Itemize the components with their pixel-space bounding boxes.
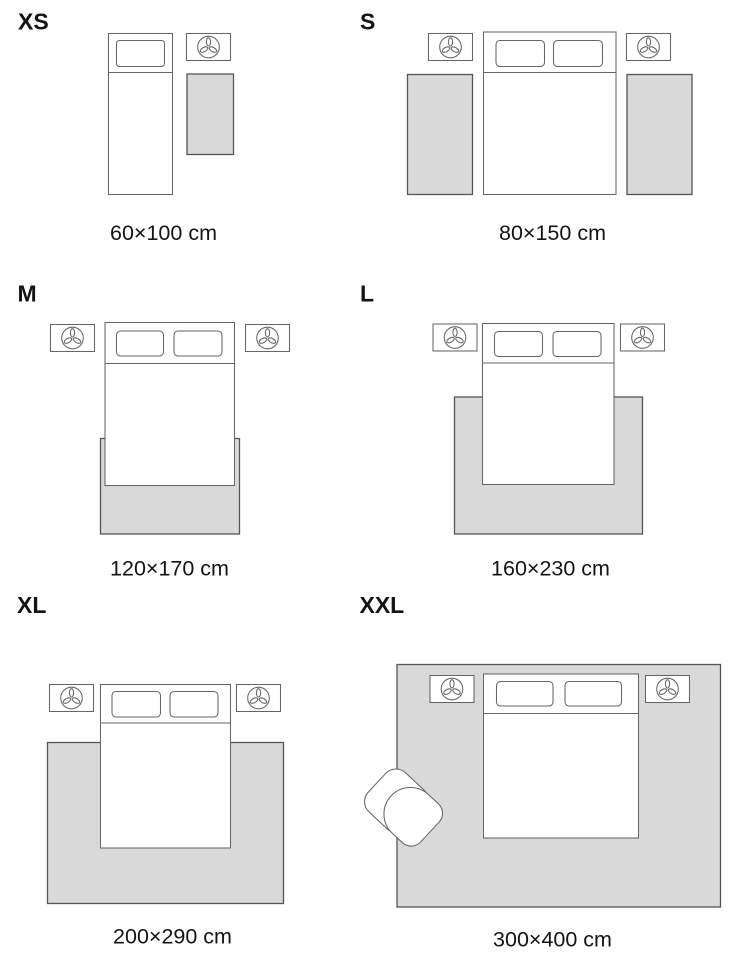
svg-text:M: M	[18, 281, 37, 307]
svg-text:160×230 cm: 160×230 cm	[491, 556, 610, 580]
svg-text:200×290 cm: 200×290 cm	[113, 925, 232, 949]
svg-text:300×400 cm: 300×400 cm	[493, 928, 612, 952]
svg-text:120×170 cm: 120×170 cm	[110, 556, 229, 580]
svg-text:60×100 cm: 60×100 cm	[110, 221, 217, 245]
svg-text:80×150 cm: 80×150 cm	[499, 221, 606, 245]
svg-text:XL: XL	[17, 592, 46, 618]
svg-text:XXL: XXL	[360, 592, 405, 618]
svg-text:XS: XS	[18, 9, 49, 35]
svg-text:L: L	[360, 281, 374, 307]
svg-text:S: S	[360, 9, 375, 35]
